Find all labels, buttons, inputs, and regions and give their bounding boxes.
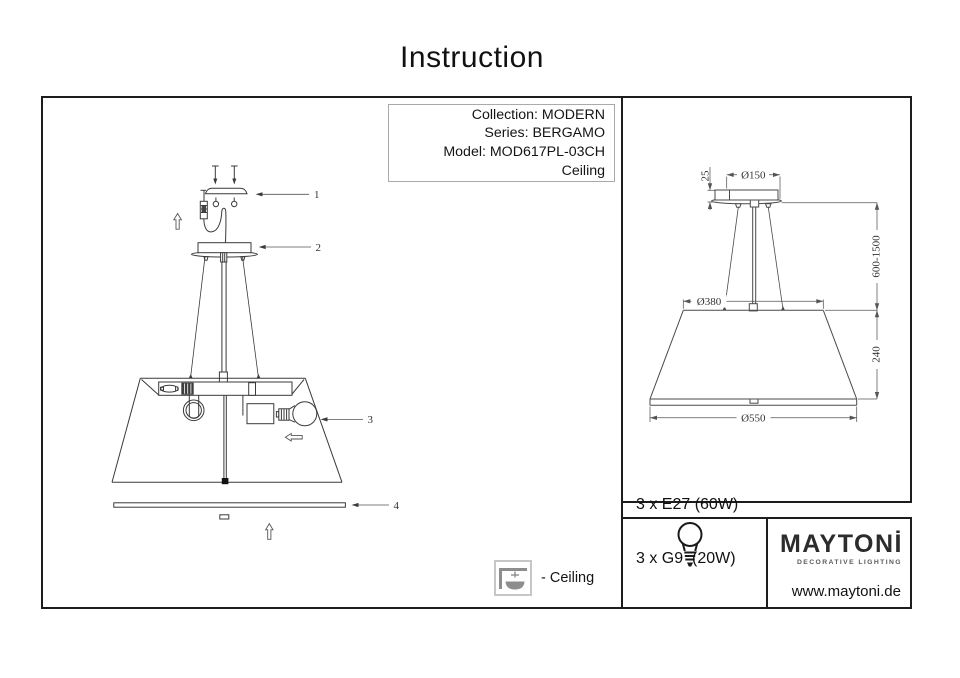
page-title: Instruction (0, 41, 944, 75)
brand-website: www.maytoni.de (792, 583, 901, 600)
dim-suspension-range: 600-1500 (871, 235, 883, 278)
assembly-panel: 1 2 (41, 96, 623, 609)
info-collection: Collection: MODERN (389, 106, 605, 125)
ceiling-legend: - Ceiling (494, 560, 594, 596)
dim-shade-height: 240 (871, 346, 883, 363)
driver-box (247, 404, 274, 424)
lamp-spec-e27: 3 x E27 (60W) (636, 496, 738, 514)
insert-up-arrow-2 (266, 524, 273, 540)
finial-nut (220, 515, 229, 519)
footer-panel: 3 x E27 (60W) 3 x G9 (20W) MAYTONİ DECOR… (621, 517, 912, 609)
lamp-specs-cell: 3 x E27 (60W) 3 x G9 (20W) (623, 519, 768, 607)
brand-cell: MAYTONİ DECORATIVE LIGHTING www.maytoni.… (768, 519, 910, 607)
diffuser-plate (114, 503, 346, 507)
dim-canopy-diameter: Ø150 (741, 169, 766, 181)
dim-shade-bottom-diameter: Ø550 (741, 412, 766, 424)
ceiling-icon-box (494, 560, 532, 596)
info-mount-type: Ceiling (389, 162, 605, 181)
part-label-2: 2 (316, 242, 322, 254)
hook-right (232, 198, 237, 207)
part-label-4: 4 (394, 500, 400, 512)
product-info-box: Collection: MODERN Series: BERGAMO Model… (388, 104, 615, 182)
insert-left-arrow (285, 433, 302, 441)
canopy (198, 243, 251, 253)
dimensions-panel: Ø150 25 600-1500 240 Ø380 Ø550 (621, 96, 912, 503)
screw-right (231, 166, 238, 185)
dimension-drawing: Ø150 25 600-1500 240 Ø380 Ø550 (623, 98, 910, 501)
brand-logo: MAYTONİ (780, 532, 903, 556)
dim-canopy-height: 25 (700, 170, 712, 182)
brand-tagline: DECORATIVE LIGHTING (797, 559, 902, 566)
dim-shade-top-diameter: Ø380 (697, 296, 722, 308)
lamp-specs: 3 x E27 (60W) 3 x G9 (20W) (636, 460, 738, 604)
info-series: Series: BERGAMO (389, 124, 605, 143)
ceiling-legend-label: - Ceiling (541, 570, 594, 586)
ceiling-lamp-icon (496, 562, 530, 594)
e27-socket (249, 383, 256, 396)
lamp-spec-g9: 3 x G9 (20W) (636, 550, 738, 568)
screw-left (212, 166, 219, 185)
part-label-1: 1 (314, 189, 320, 201)
hook-left (213, 198, 218, 207)
g9-socket (181, 383, 193, 395)
e27-bulb (276, 402, 316, 426)
insert-up-arrow (174, 214, 182, 230)
mounting-bracket (206, 188, 248, 194)
terminal-block (200, 201, 207, 219)
instruction-sheet: Instruction (0, 0, 960, 678)
part-label-3: 3 (368, 414, 374, 426)
info-model: Model: MOD617PL-03CH (389, 143, 605, 162)
